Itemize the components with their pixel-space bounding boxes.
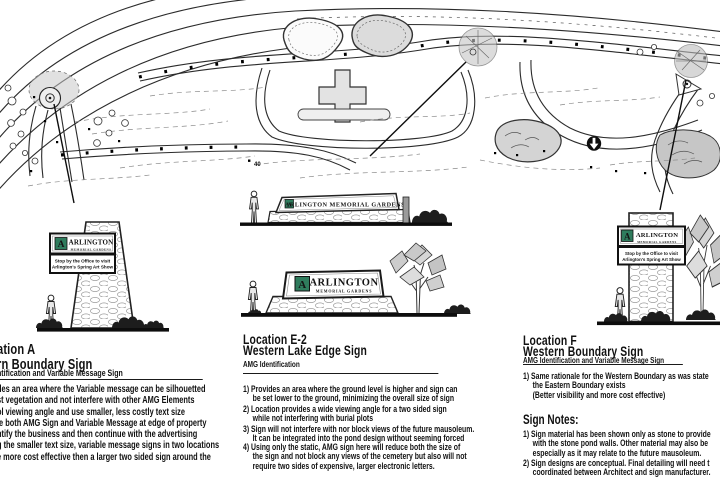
body-line: st vegetation and not interfere with oth… xyxy=(0,395,219,406)
body-line: especially as it may relate to the futur… xyxy=(523,449,711,459)
location-a-panel: ation A rn Boundary Sign ntification and… xyxy=(0,0,249,478)
panel-subtitle: ntification and Variable Message Sign xyxy=(0,368,123,379)
sign-notes-heading: Sign Notes: xyxy=(523,412,579,427)
numbered-note: 2) Sign designs are conceptual. Final de… xyxy=(523,459,711,478)
body-line: g the smaller text size, variable messag… xyxy=(0,440,219,451)
body-line: ntify the business and then continue wit… xyxy=(0,429,219,440)
body-line: des an area where the Variable message c… xyxy=(0,384,219,395)
location-e2-panel: Location E-2 Western Lake Edge Sign AMG … xyxy=(243,0,495,478)
body-line: be set lower to the ground, minimizing t… xyxy=(243,394,457,403)
numbered-item: 2) Location provides a wide viewing angl… xyxy=(243,405,447,424)
body-line: le both AMG Sign and Variable Message at… xyxy=(0,418,219,429)
body-line: ol viewing angle and use smaller, less c… xyxy=(0,407,219,418)
numbered-item: 1) Provides an area where the ground lev… xyxy=(243,385,457,404)
panel-title: Western Lake Edge Sign xyxy=(243,342,367,358)
divider xyxy=(523,364,683,365)
numbered-item: 1) Same rationale for the Western Bounda… xyxy=(523,372,709,401)
body-line: require two sides of expensive, larger e… xyxy=(243,462,467,471)
body-line: e more cost effective then a larger two … xyxy=(0,452,219,463)
numbered-note: 1) Sign material has been shown only as … xyxy=(523,430,711,459)
panel-body: des an area where the Variable message c… xyxy=(0,384,219,463)
divider xyxy=(243,373,438,374)
location-f-panel: Location F Western Boundary Sign AMG Ide… xyxy=(523,0,720,478)
body-line: while not interfering with burial plots xyxy=(243,414,447,423)
presentation-sheet: 40 A ARLINGTON MEMORIAL GARDENS Stop by … xyxy=(0,0,720,478)
body-line: (Better visibility and more cost effecti… xyxy=(523,391,709,401)
panel-subtitle: AMG Identification xyxy=(243,359,300,369)
numbered-item: 3) Sign will not interfere with nor bloc… xyxy=(243,425,474,444)
divider xyxy=(0,379,203,380)
numbered-item: 4) Using only the static, AMG sign here … xyxy=(243,443,467,471)
body-line: coordinated between Architect and sign m… xyxy=(523,468,711,478)
